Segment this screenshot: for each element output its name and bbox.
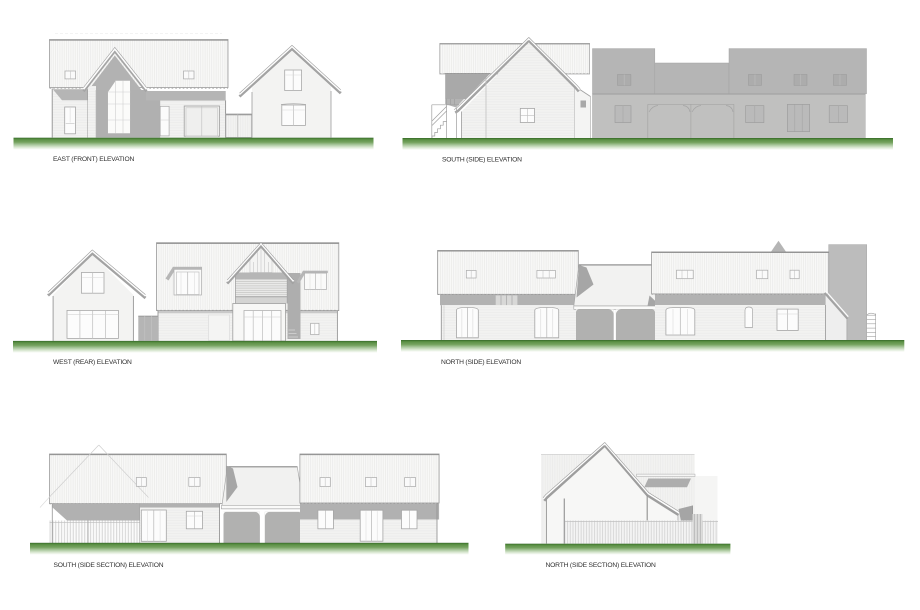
svg-text:EAST (FRONT) ELEVATION: EAST (FRONT) ELEVATION <box>53 156 134 163</box>
svg-text:SOUTH (SIDE SECTION) ELEVATION: SOUTH (SIDE SECTION) ELEVATION <box>54 562 164 569</box>
svg-text:SOUTH (SIDE) ELEVATION: SOUTH (SIDE) ELEVATION <box>442 157 522 164</box>
svg-text:NORTH (SIDE) ELEVATION: NORTH (SIDE) ELEVATION <box>441 359 521 366</box>
svg-text:NORTH (SIDE SECTION) ELEVATION: NORTH (SIDE SECTION) ELEVATION <box>546 562 657 569</box>
svg-text:WEST (REAR) ELEVATION: WEST (REAR) ELEVATION <box>53 359 132 366</box>
